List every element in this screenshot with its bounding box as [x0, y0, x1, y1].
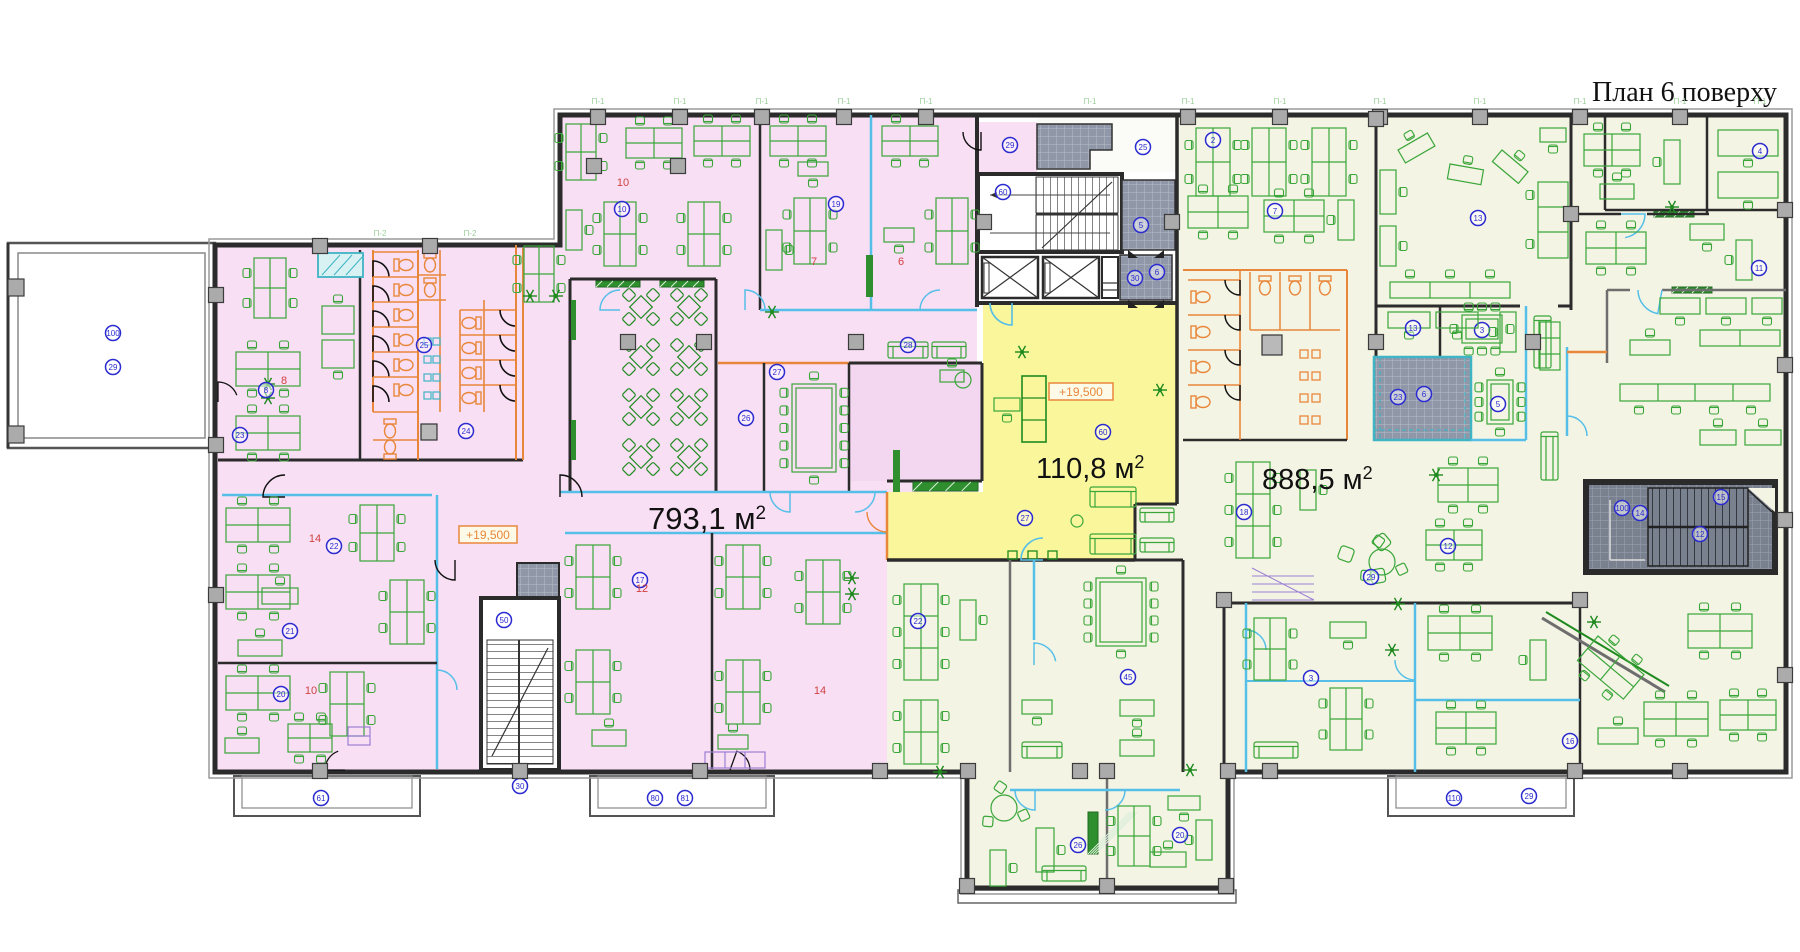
svg-text:18: 18	[1240, 508, 1249, 517]
svg-text:7: 7	[811, 256, 817, 268]
svg-text:П-1: П-1	[756, 97, 769, 106]
svg-text:22: 22	[914, 617, 923, 626]
svg-text:12: 12	[636, 583, 648, 595]
svg-text:П-1: П-1	[1274, 97, 1287, 106]
svg-text:110: 110	[1448, 794, 1461, 803]
svg-text:26: 26	[742, 414, 751, 423]
svg-text:П-1: П-1	[592, 97, 605, 106]
svg-text:20: 20	[1176, 831, 1185, 840]
svg-text:5: 5	[1496, 400, 1501, 409]
svg-text:11: 11	[1755, 264, 1764, 273]
svg-text:6: 6	[898, 256, 904, 268]
svg-text:П-1: П-1	[1374, 97, 1387, 106]
svg-text:23: 23	[236, 431, 245, 440]
svg-text:12: 12	[1696, 530, 1705, 539]
svg-text:21: 21	[286, 627, 295, 636]
svg-text:24: 24	[462, 427, 471, 436]
svg-text:30: 30	[516, 782, 525, 791]
svg-text:6: 6	[1155, 268, 1160, 277]
svg-text:4: 4	[1758, 147, 1763, 156]
svg-text:14: 14	[1636, 509, 1645, 518]
svg-text:7: 7	[1273, 207, 1278, 216]
svg-text:30: 30	[1131, 274, 1140, 283]
svg-text:П-2: П-2	[374, 229, 387, 238]
svg-text:П-2: П-2	[464, 229, 477, 238]
svg-text:28: 28	[904, 341, 913, 350]
svg-text:60: 60	[999, 188, 1008, 197]
svg-text:27: 27	[773, 368, 782, 377]
svg-text:100: 100	[1615, 504, 1629, 513]
svg-text:10: 10	[305, 685, 317, 697]
svg-text:16: 16	[1566, 737, 1575, 746]
svg-text:+19,500: +19,500	[1059, 385, 1103, 399]
svg-text:+19,500: +19,500	[466, 528, 510, 542]
svg-text:П-1: П-1	[1674, 97, 1687, 106]
svg-text:5: 5	[1139, 221, 1144, 230]
svg-text:61: 61	[317, 794, 326, 803]
svg-text:2: 2	[1211, 136, 1216, 145]
svg-text:27: 27	[1021, 514, 1030, 523]
svg-text:6: 6	[1422, 390, 1427, 399]
svg-text:15: 15	[1717, 493, 1726, 502]
svg-text:100: 100	[106, 329, 120, 338]
svg-text:45: 45	[1124, 673, 1133, 682]
svg-text:25: 25	[1139, 143, 1148, 152]
svg-text:П-1: П-1	[1084, 97, 1097, 106]
svg-text:29: 29	[1367, 573, 1376, 582]
svg-text:П-1: П-1	[1574, 97, 1587, 106]
svg-text:П-1: П-1	[920, 97, 933, 106]
svg-text:25: 25	[420, 341, 429, 350]
svg-text:20: 20	[277, 690, 286, 699]
svg-text:22: 22	[330, 542, 339, 551]
svg-text:29: 29	[1525, 792, 1534, 801]
svg-text:8: 8	[281, 375, 287, 387]
svg-text:14: 14	[814, 685, 826, 697]
svg-text:П-1: П-1	[1474, 97, 1487, 106]
svg-text:П-1: П-1	[1182, 97, 1195, 106]
svg-text:П-1: П-1	[1754, 97, 1767, 106]
svg-text:13: 13	[1474, 214, 1483, 223]
svg-text:81: 81	[681, 794, 690, 803]
svg-text:50: 50	[500, 616, 509, 625]
svg-text:80: 80	[651, 794, 660, 803]
svg-text:23: 23	[1394, 393, 1403, 402]
svg-text:19: 19	[832, 200, 841, 209]
svg-text:12: 12	[1444, 542, 1453, 551]
svg-text:14: 14	[309, 533, 321, 545]
svg-text:110,8 м2: 110,8 м2	[1036, 452, 1144, 485]
svg-text:793,1 м2: 793,1 м2	[648, 501, 766, 536]
svg-text:888,5 м2: 888,5 м2	[1262, 463, 1373, 496]
svg-text:13: 13	[1409, 324, 1418, 333]
svg-text:60: 60	[1099, 428, 1108, 437]
svg-text:8: 8	[264, 386, 269, 395]
svg-text:П-1: П-1	[674, 97, 687, 106]
svg-text:П-1: П-1	[838, 97, 851, 106]
svg-text:26: 26	[1074, 841, 1083, 850]
svg-text:3: 3	[1309, 674, 1314, 683]
svg-text:29: 29	[1006, 141, 1015, 150]
svg-text:3: 3	[1480, 326, 1485, 335]
svg-text:10: 10	[617, 177, 629, 189]
svg-text:10: 10	[618, 205, 627, 214]
svg-text:29: 29	[109, 363, 118, 372]
